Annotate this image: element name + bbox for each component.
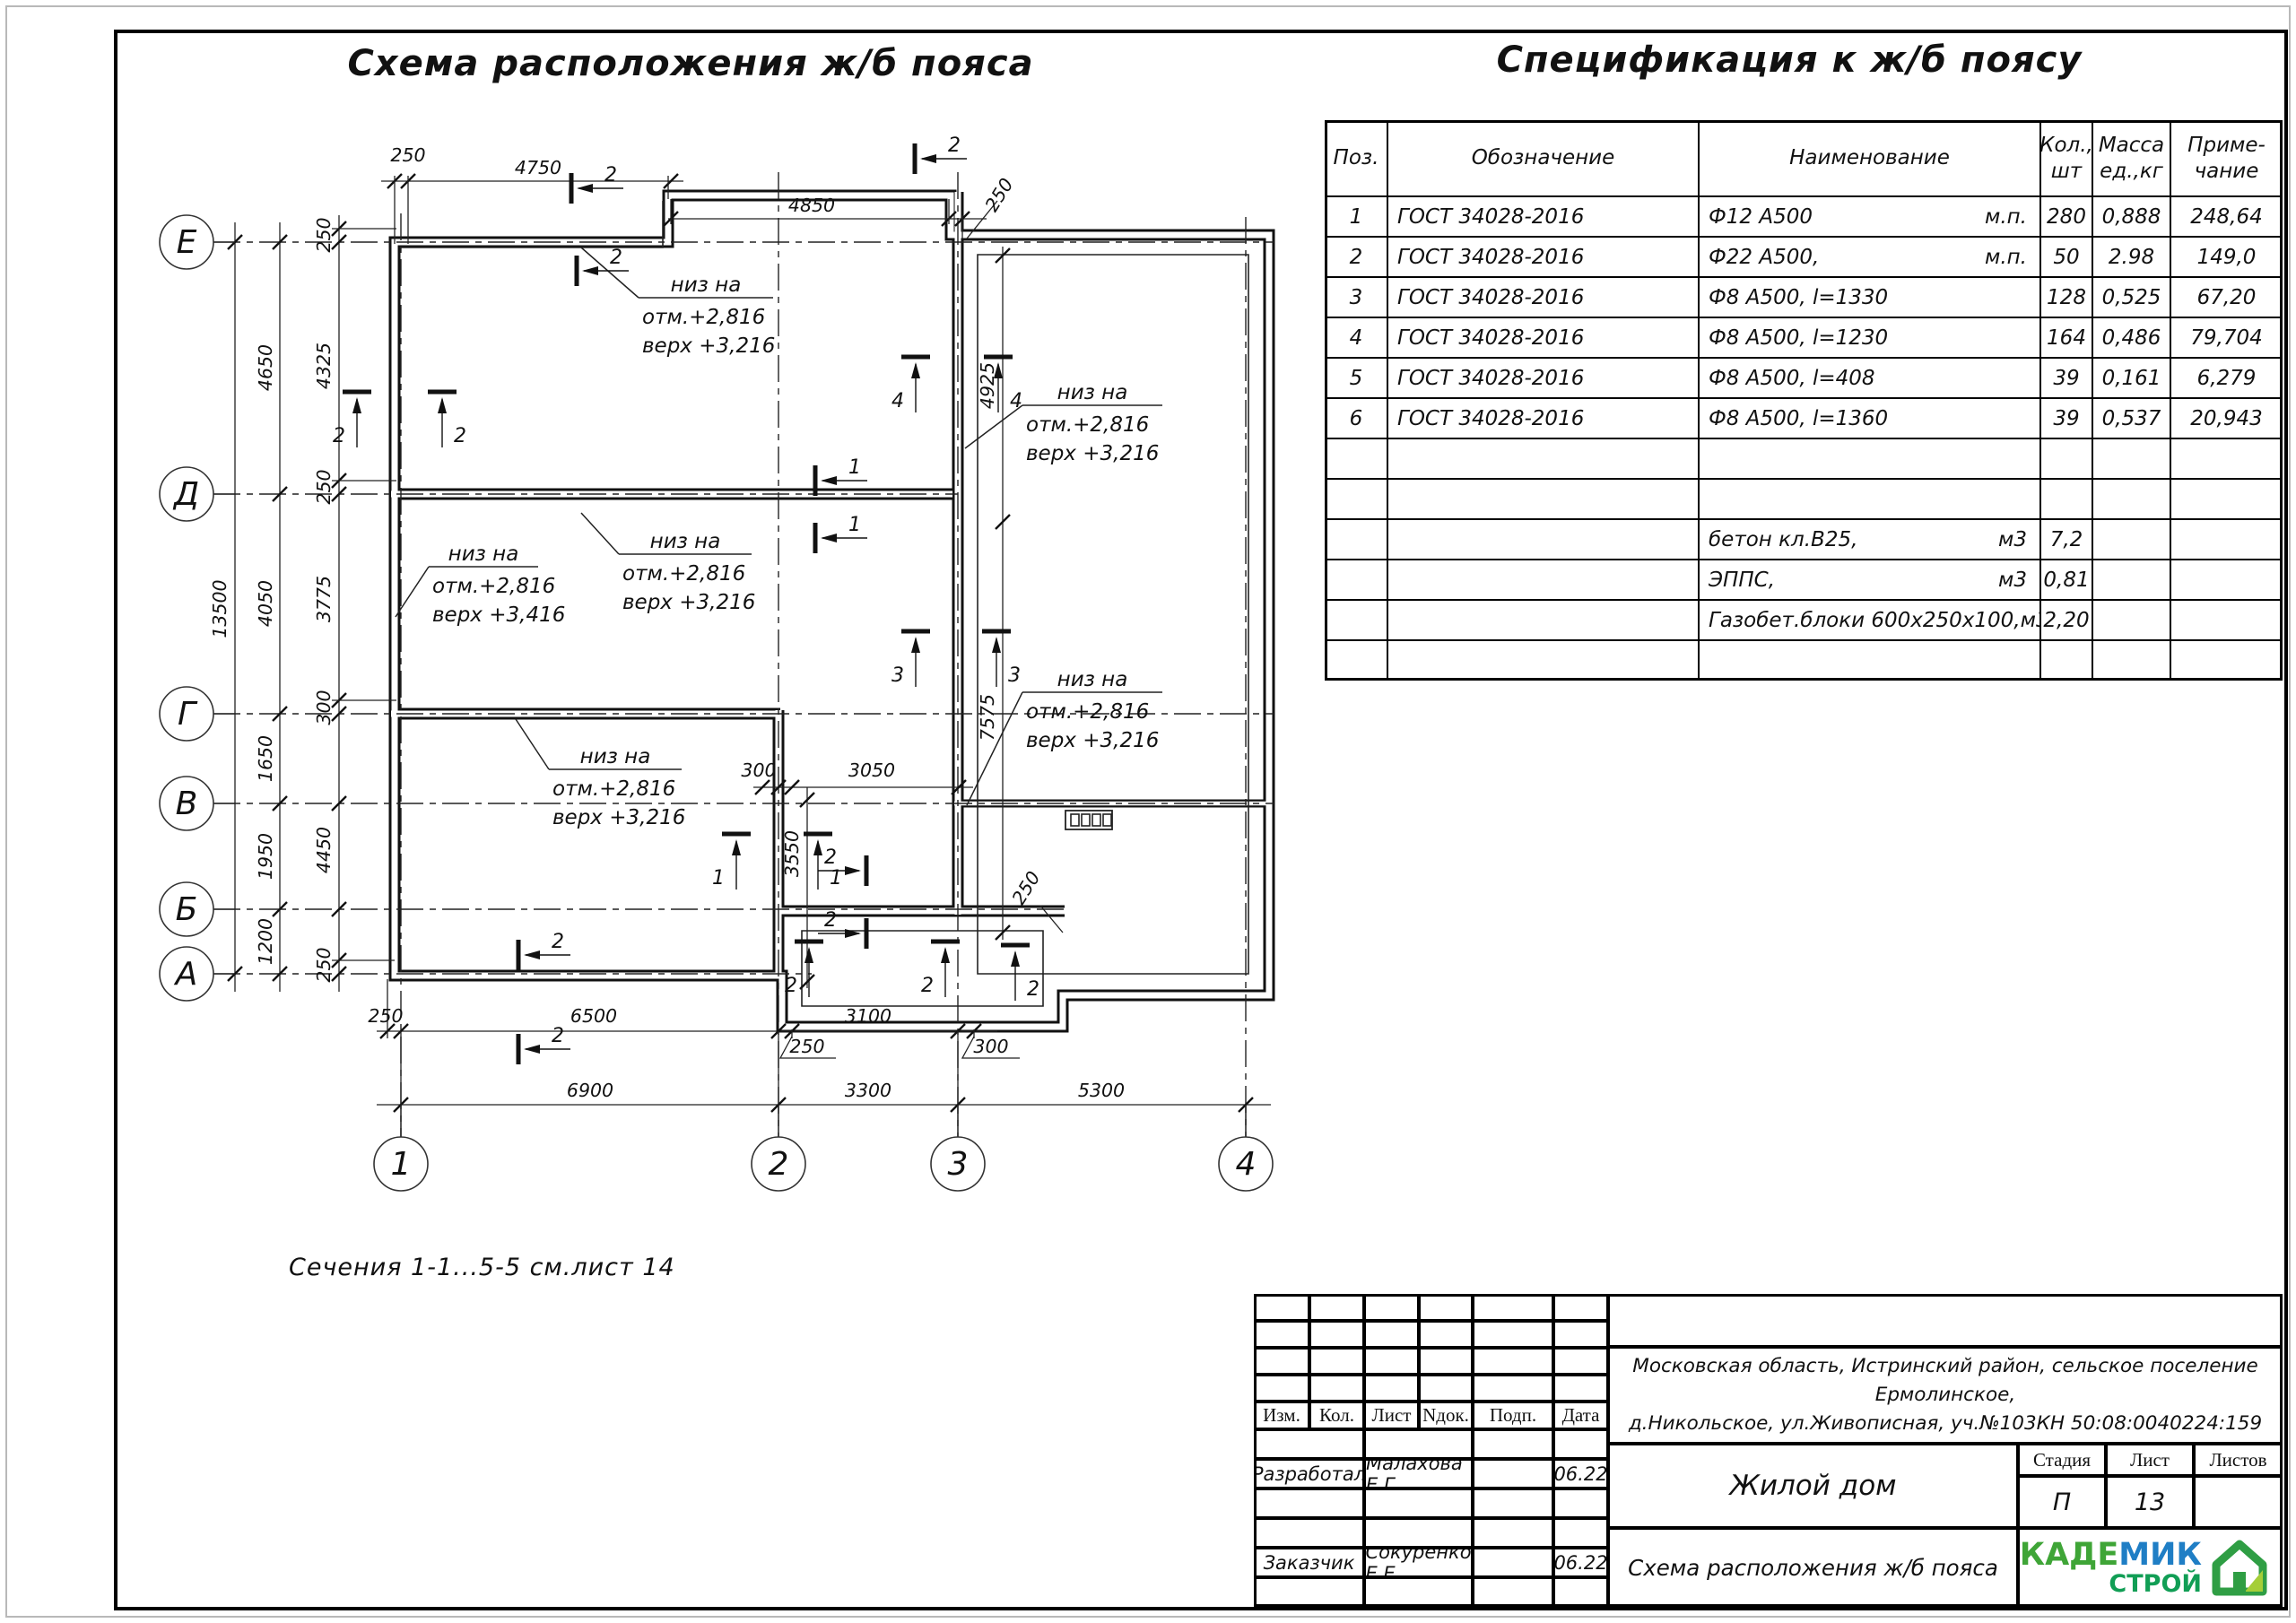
spec-header-qty: Кол.,шт — [2040, 120, 2092, 196]
project-address-line2: д.Никольское, ул.Живописная, уч.№103КН 5… — [1629, 1410, 2262, 1438]
spec-cell-name — [1699, 479, 2040, 519]
signature-name — [1364, 1429, 1473, 1459]
section-mark-arrowhead — [920, 154, 936, 163]
vent-block-square — [1103, 814, 1111, 826]
section-mark-number: 2 — [1027, 978, 1039, 1001]
section-mark-arrowhead — [941, 947, 950, 963]
spec-cell-mass — [2092, 640, 2170, 681]
spec-cell-mass: 0,888 — [2092, 196, 2170, 237]
spec-cell-note — [2170, 519, 2283, 560]
revision-empty-cell — [1254, 1294, 1309, 1321]
revision-empty-cell — [1309, 1375, 1364, 1402]
dimension-label: 4325 — [313, 343, 335, 389]
revision-empty-cell — [1254, 1321, 1309, 1348]
axis-letter-label: В — [176, 785, 198, 822]
revision-empty-cell — [1553, 1348, 1608, 1375]
signature-name: Сокуренко Е.Е. — [1364, 1548, 1473, 1577]
dimension-label: 250 — [390, 144, 425, 166]
spec-cell-code — [1387, 479, 1699, 519]
signature-date: 06.22 — [1553, 1548, 1608, 1577]
spec-cell-note — [2170, 438, 2283, 479]
spec-cell-note — [2170, 560, 2283, 600]
sheets-value — [2194, 1476, 2283, 1528]
spec-cell-code: ГОСТ 34028-2016 — [1387, 277, 1699, 317]
section-mark-arrowhead — [352, 397, 361, 413]
section-mark-number: 1 — [848, 514, 861, 536]
dimension-label: 300 — [973, 1036, 1008, 1057]
section-mark-number: 1 — [712, 867, 725, 890]
axis-number-label: 4 — [1236, 1146, 1257, 1183]
elevation-note: отм.+2,816 — [1026, 413, 1149, 437]
dimension-label: 3300 — [845, 1080, 891, 1101]
sheet-value: 13 — [2106, 1476, 2194, 1528]
elevation-note: низ на — [448, 542, 519, 566]
spec-cell-note: 149,0 — [2170, 237, 2283, 277]
elevation-note: верх +3,416 — [432, 603, 565, 627]
spec-cell-note — [2170, 479, 2283, 519]
dimension-label: 1950 — [255, 833, 276, 880]
section-mark-number: 2 — [604, 164, 617, 187]
specification-table: Поз.ОбозначениеНаименованиеКол.,штМассае… — [1325, 120, 2283, 681]
signature-sign — [1473, 1548, 1553, 1577]
spec-cell-mass: 0,486 — [2092, 317, 2170, 358]
section-mark-number: 4 — [1010, 390, 1022, 412]
revision-header-5: Подп. — [1473, 1402, 1553, 1429]
dimension-label: 6900 — [567, 1080, 613, 1101]
spec-cell-name: Ф8 А500, l=1330 — [1699, 277, 2040, 317]
section-mark-number: 2 — [454, 425, 466, 447]
spec-header-code: Обозначение — [1387, 120, 1699, 196]
revision-empty-cell — [1419, 1294, 1473, 1321]
spec-cell-qty: 7,2 — [2040, 519, 2092, 560]
spec-cell-qty: 128 — [2040, 277, 2092, 317]
dimension-label: 7575 — [977, 694, 998, 741]
vent-block-square — [1092, 814, 1100, 826]
axis-number-label: 3 — [948, 1146, 969, 1183]
axis-letter-label: Б — [176, 891, 198, 928]
spec-cell-code — [1387, 560, 1699, 600]
spec-cell-name — [1699, 640, 2040, 681]
spec-cell-note — [2170, 600, 2283, 640]
dimension-label: 5300 — [1078, 1080, 1125, 1101]
signature-sign — [1473, 1518, 1553, 1548]
section-mark-arrowhead — [582, 266, 598, 275]
signature-name — [1364, 1518, 1473, 1548]
dimension-label: 250 — [789, 1036, 824, 1057]
spec-cell-qty: 0,81 — [2040, 560, 2092, 600]
section-mark-arrowhead — [813, 839, 822, 855]
dimension-label: 250 — [313, 469, 335, 504]
spec-cell-pos: 3 — [1325, 277, 1387, 317]
signature-sign — [1473, 1577, 1553, 1607]
elevation-note: отм.+2,816 — [622, 562, 745, 586]
spec-cell-code: ГОСТ 34028-2016 — [1387, 358, 1699, 398]
revision-empty-cell — [1553, 1375, 1608, 1402]
spec-title: Спецификация к ж/б поясу — [1497, 39, 2083, 81]
signature-role — [1254, 1429, 1364, 1459]
spec-cell-code — [1387, 438, 1699, 479]
elevation-note: низ на — [580, 745, 651, 768]
spec-cell-mass: 0,537 — [2092, 398, 2170, 438]
elevation-note: верх +3,216 — [622, 591, 755, 614]
spec-cell-code — [1387, 640, 1699, 681]
spec-cell-pos — [1325, 600, 1387, 640]
spec-cell-qty — [2040, 640, 2092, 681]
house-icon — [2216, 1544, 2263, 1592]
project-address-line1: Московская область, Истринский район, се… — [1610, 1352, 2281, 1410]
spec-cell-qty — [2040, 438, 2092, 479]
revision-empty-cell — [1473, 1294, 1553, 1321]
spec-cell-mass: 2.98 — [2092, 237, 2170, 277]
spec-cell-pos — [1325, 438, 1387, 479]
signature-name — [1364, 1577, 1473, 1607]
dimension-label: 250 — [1008, 867, 1045, 908]
section-mark-arrowhead — [524, 950, 540, 959]
logo-graphic: АКАДЕМИК СТРОЙ — [2022, 1531, 2278, 1604]
revision-empty-cell — [1309, 1348, 1364, 1375]
section-mark-number: 2 — [921, 975, 934, 997]
axis-letter-label: Г — [178, 696, 198, 733]
spec-cell-pos: 1 — [1325, 196, 1387, 237]
signature-sign — [1473, 1429, 1553, 1459]
spec-cell-pos — [1325, 560, 1387, 600]
dimension-label: 300 — [741, 759, 776, 781]
revision-empty-cell — [1364, 1348, 1419, 1375]
revision-empty-cell — [1364, 1294, 1419, 1321]
section-mark-number: 2 — [824, 909, 837, 932]
signature-role — [1254, 1488, 1364, 1518]
revision-empty-cell — [1254, 1348, 1309, 1375]
spec-cell-name: Ф8 А500, l=1360 — [1699, 398, 2040, 438]
signature-date: 06.22 — [1553, 1459, 1608, 1488]
dimension-label: 250 — [313, 947, 335, 982]
section-mark-arrowhead — [911, 362, 920, 378]
vent-block-square — [1082, 814, 1090, 826]
revision-empty-cell — [1419, 1348, 1473, 1375]
title-block-empty-strip — [1608, 1294, 2283, 1347]
elevation-note: отм.+2,816 — [1026, 700, 1149, 724]
spec-cell-name — [1699, 438, 2040, 479]
signature-role — [1254, 1518, 1364, 1548]
elevation-note: верх +3,216 — [642, 334, 775, 358]
section-mark-arrowhead — [1011, 950, 1020, 967]
signature-name: Малахова Е.Г. — [1364, 1459, 1473, 1488]
spec-cell-name: Ф8 А500, l=1230 — [1699, 317, 2040, 358]
section-mark-arrowhead — [524, 1045, 540, 1054]
section-mark-arrowhead — [992, 637, 1001, 653]
spec-cell-mass — [2092, 438, 2170, 479]
section-mark-number: 1 — [848, 456, 861, 479]
dimension-label: 3775 — [313, 576, 335, 622]
logo-academik: АКАДЕМИК — [2022, 1537, 2202, 1573]
axis-number-label: 1 — [391, 1146, 412, 1183]
spec-cell-code — [1387, 519, 1699, 560]
signature-date — [1553, 1429, 1608, 1459]
stage-value: П — [2018, 1476, 2106, 1528]
revision-empty-cell — [1309, 1321, 1364, 1348]
section-mark-arrowhead — [821, 476, 837, 485]
revision-empty-cell — [1473, 1375, 1553, 1402]
floor-plan-drawing: 2504750485025025065003100250300690033005… — [108, 72, 1336, 1345]
spec-cell-pos: 2 — [1325, 237, 1387, 277]
revision-empty-cell — [1419, 1375, 1473, 1402]
dimension-label: 1650 — [255, 735, 276, 782]
section-mark-number: 2 — [948, 135, 961, 157]
spec-cell-code: ГОСТ 34028-2016 — [1387, 317, 1699, 358]
revision-empty-cell — [1473, 1321, 1553, 1348]
spec-cell-note: 6,279 — [2170, 358, 2283, 398]
spec-cell-qty: 50 — [2040, 237, 2092, 277]
drawing-sheet: Схема расположения ж/б пояса Спецификаци… — [0, 0, 2296, 1623]
spec-cell-pos: 5 — [1325, 358, 1387, 398]
elevation-note: отм.+2,816 — [642, 306, 765, 329]
section-mark-number: 4 — [891, 390, 904, 412]
signature-role: Заказчик — [1254, 1548, 1364, 1577]
company-logo: АКАДЕМИК СТРОЙ — [2018, 1528, 2283, 1607]
dimension-label: 4450 — [313, 827, 335, 873]
spec-cell-code: ГОСТ 34028-2016 — [1387, 196, 1699, 237]
note-leader — [581, 513, 619, 554]
dimension-label: 250 — [368, 1005, 403, 1027]
signature-name — [1364, 1488, 1473, 1518]
spec-cell-pos — [1325, 479, 1387, 519]
dimension-label: 250 — [313, 217, 335, 252]
revision-header-2: Кол. — [1309, 1402, 1364, 1429]
spec-header-note: Приме-чание — [2170, 120, 2283, 196]
spec-cell-mass — [2092, 519, 2170, 560]
section-mark-arrowhead — [438, 397, 447, 413]
section-mark-arrowhead — [821, 534, 837, 542]
dimension-label: 4650 — [255, 344, 276, 391]
spec-cell-pos: 6 — [1325, 398, 1387, 438]
spec-cell-mass — [2092, 600, 2170, 640]
revision-header-4: Nдок. — [1419, 1402, 1473, 1429]
sheet-label: Лист — [2106, 1444, 2194, 1476]
spec-cell-qty: 280 — [2040, 196, 2092, 237]
dimension-label: 13500 — [209, 579, 230, 638]
spec-cell-qty: 39 — [2040, 358, 2092, 398]
elevation-note: низ на — [1057, 668, 1128, 691]
section-mark-number: 3 — [891, 664, 904, 687]
vent-block-detail — [1065, 811, 1112, 829]
signature-sign — [1473, 1459, 1553, 1488]
signature-role — [1254, 1577, 1364, 1607]
spec-cell-mass: 0,525 — [2092, 277, 2170, 317]
spec-cell-qty: 164 — [2040, 317, 2092, 358]
spec-cell-pos: 4 — [1325, 317, 1387, 358]
document-title: Схема расположения ж/б пояса — [1608, 1528, 2018, 1607]
dimension-label: 6500 — [570, 1005, 617, 1027]
section-mark-number: 2 — [552, 1025, 564, 1047]
spec-cell-code: ГОСТ 34028-2016 — [1387, 398, 1699, 438]
section-mark-arrowhead — [732, 839, 741, 855]
axis-number-label: 2 — [769, 1146, 789, 1183]
spec-cell-code: ГОСТ 34028-2016 — [1387, 237, 1699, 277]
signature-date — [1553, 1488, 1608, 1518]
revision-empty-cell — [1553, 1321, 1608, 1348]
spec-header-name: Наименование — [1699, 120, 2040, 196]
note-leader — [516, 719, 549, 769]
spec-cell-mass — [2092, 560, 2170, 600]
spec-cell-name: бетон кл.В25,м3 — [1699, 519, 2040, 560]
vent-block-square — [1071, 814, 1079, 826]
spec-header-mass: Массаед.,кг — [2092, 120, 2170, 196]
spec-cell-pos — [1325, 640, 1387, 681]
stage-label: Стадия — [2018, 1444, 2106, 1476]
section-mark-arrowhead — [845, 866, 861, 875]
section-mark-arrowhead — [804, 947, 813, 963]
spec-header-pos: Поз. — [1325, 120, 1387, 196]
logo-stroy: СТРОЙ — [2109, 1569, 2202, 1598]
axis-letter-label: Д — [172, 476, 199, 513]
revision-empty-cell — [1254, 1375, 1309, 1402]
spec-cell-name: Ф12 А500м.п. — [1699, 196, 2040, 237]
signature-date — [1553, 1577, 1608, 1607]
revision-empty-cell — [1473, 1348, 1553, 1375]
dimension-label: 4750 — [515, 157, 561, 178]
sheets-label: Листов — [2194, 1444, 2283, 1476]
elevation-note: верх +3,216 — [552, 806, 685, 829]
object-name: Жилой дом — [1608, 1444, 2018, 1528]
dimension-label: 3550 — [781, 830, 803, 877]
section-mark-number: 2 — [333, 425, 345, 447]
dimension-label: 3100 — [845, 1005, 891, 1027]
spec-cell-mass: 0,161 — [2092, 358, 2170, 398]
signature-date — [1553, 1518, 1608, 1548]
elevation-note: верх +3,216 — [1026, 442, 1159, 465]
signature-role: Разработал — [1254, 1459, 1364, 1488]
spec-cell-name: Газобет.блоки 600х250х100,м3 — [1699, 600, 2040, 640]
spec-cell-qty — [2040, 479, 2092, 519]
dimension-label: 250 — [981, 174, 1018, 215]
elevation-note: низ на — [671, 273, 742, 297]
dimension-label: 4850 — [788, 195, 835, 216]
dimension-label: 4925 — [977, 362, 998, 409]
project-address: Московская область, Истринский район, се… — [1608, 1347, 2283, 1444]
revision-header-3: Лист — [1364, 1402, 1419, 1429]
elevation-note: низ на — [1057, 381, 1128, 404]
spec-cell-note: 67,20 — [2170, 277, 2283, 317]
axis-letter-label: А — [174, 956, 198, 993]
spec-cell-mass — [2092, 479, 2170, 519]
dimension-label: 4050 — [255, 580, 276, 627]
dimension-label: 300 — [313, 690, 335, 725]
elevation-note: верх +3,216 — [1026, 729, 1159, 752]
revision-header-6: Дата — [1553, 1402, 1608, 1429]
spec-cell-qty: 2,20 — [2040, 600, 2092, 640]
revision-empty-cell — [1419, 1321, 1473, 1348]
section-mark-number: 2 — [610, 247, 622, 269]
spec-cell-note — [2170, 640, 2283, 681]
signature-sign — [1473, 1488, 1553, 1518]
dimension-label: 1200 — [255, 918, 276, 965]
elevation-note: низ на — [650, 530, 721, 553]
spec-cell-note: 248,64 — [2170, 196, 2283, 237]
section-mark-number: 3 — [1008, 664, 1021, 687]
spec-cell-note: 79,704 — [2170, 317, 2283, 358]
section-mark-arrowhead — [577, 184, 593, 193]
section-mark-arrowhead — [911, 637, 920, 653]
section-mark-number: 2 — [824, 846, 837, 869]
spec-cell-code — [1387, 600, 1699, 640]
section-mark-number: 2 — [785, 975, 797, 997]
spec-cell-pos — [1325, 519, 1387, 560]
dimension-label: 3050 — [848, 759, 895, 781]
revision-empty-cell — [1309, 1294, 1364, 1321]
revision-empty-cell — [1364, 1321, 1419, 1348]
spec-cell-note: 20,943 — [2170, 398, 2283, 438]
spec-cell-name: Ф22 А500,м.п. — [1699, 237, 2040, 277]
elevation-note: отм.+2,816 — [552, 777, 675, 801]
section-mark-number: 2 — [552, 931, 564, 953]
elevation-note: отм.+2,816 — [432, 575, 555, 598]
spec-cell-name: ЭППС,м3 — [1699, 560, 2040, 600]
spec-cell-qty: 39 — [2040, 398, 2092, 438]
spec-cell-name: Ф8 А500, l=408 — [1699, 358, 2040, 398]
revision-header-1: Изм. — [1254, 1402, 1309, 1429]
revision-empty-cell — [1553, 1294, 1608, 1321]
axis-letter-label: Е — [177, 224, 197, 261]
revision-empty-cell — [1364, 1375, 1419, 1402]
